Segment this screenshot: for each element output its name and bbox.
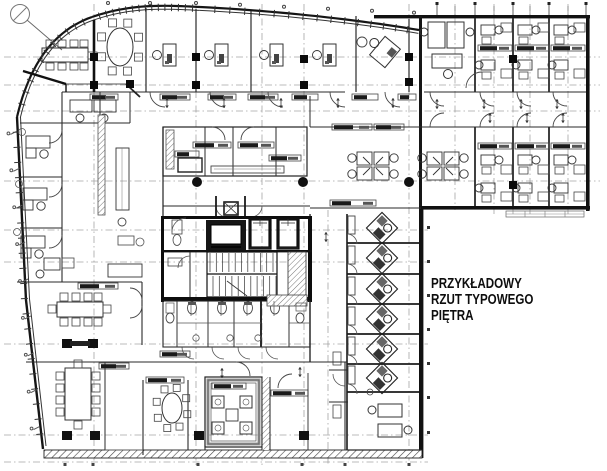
svg-text:PIĘTRA: PIĘTRA [431,307,474,324]
svg-text:RZUT TYPOWEGO: RZUT TYPOWEGO [431,291,533,308]
svg-text:PRZYKŁADOWY: PRZYKŁADOWY [431,275,522,292]
